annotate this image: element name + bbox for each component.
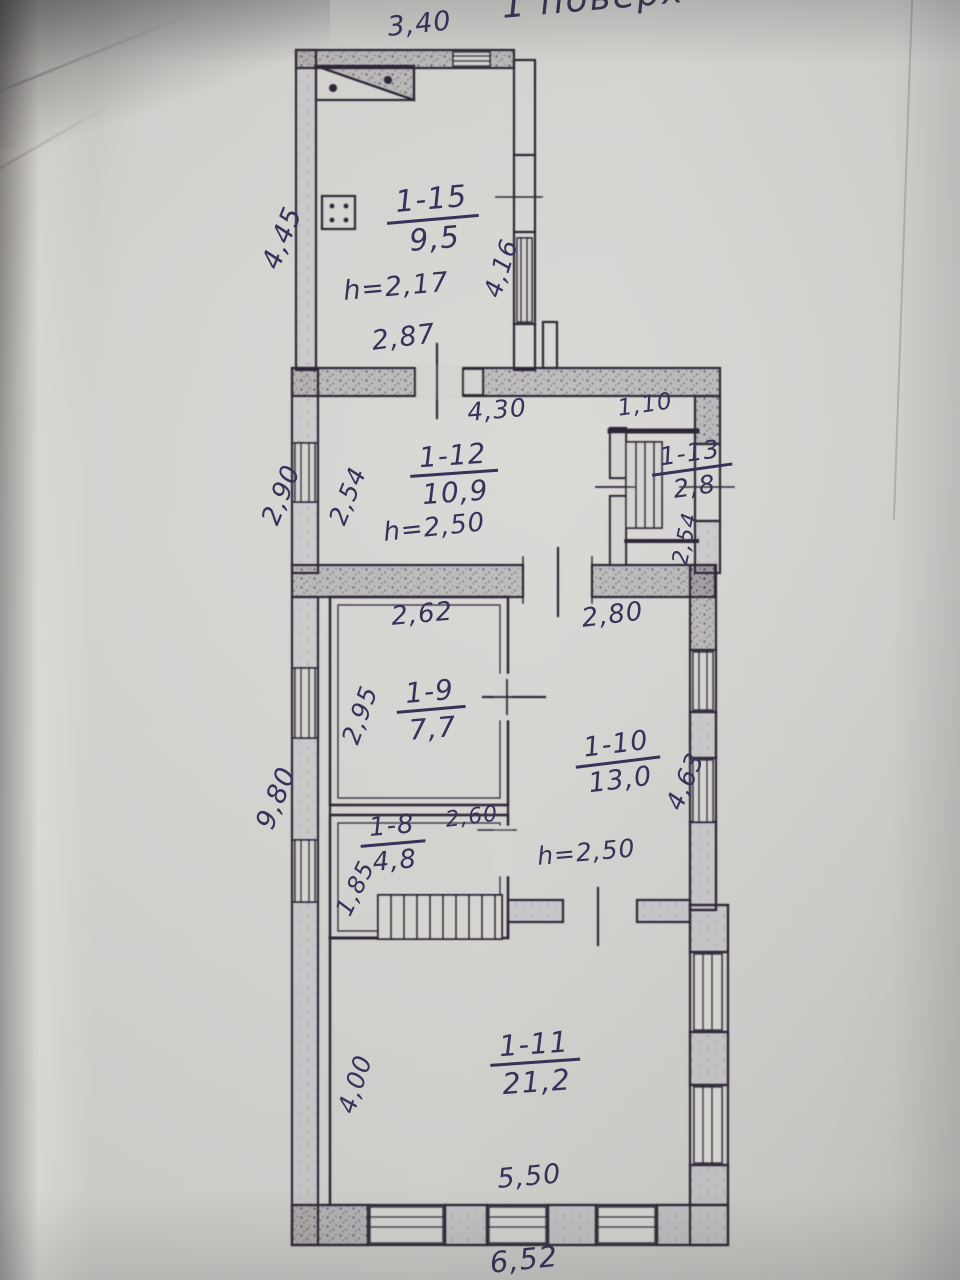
room-label-1-12: 1-12 10,9 — [408, 438, 500, 511]
floor-plan-drawing — [0, 0, 960, 1280]
room-label-1-15: 1-15 9,5 — [384, 180, 482, 259]
stairs-1-8 — [378, 895, 502, 939]
room-label-1-9: 1-9 7,7 — [394, 674, 468, 747]
room-label-1-13: 1-13 2,8 — [648, 435, 736, 506]
dim-top-1-9: 2,62 — [390, 597, 454, 632]
room-label-1-10: 1-10 13,0 — [572, 726, 665, 801]
room-label-1-11: 1-11 21,2 — [488, 1026, 582, 1101]
room-id: 1-11 — [488, 1026, 580, 1068]
walls-middle — [292, 565, 715, 597]
dim-bottom-outer: 6,52 — [488, 1239, 560, 1280]
room-area: 10,9 — [410, 472, 500, 510]
room-id: 1-9 — [394, 674, 465, 714]
scanned-floor-plan-page: 1 поверх 1-15 9,5 h=2,17 1-12 10,9 h=2,5… — [0, 0, 960, 1280]
room-area: 21,2 — [490, 1061, 582, 1101]
room-id: 1-12 — [408, 438, 498, 478]
room-area: 7,7 — [397, 708, 468, 746]
corner-flue-icon — [316, 66, 414, 100]
dim-bottom-1-11: 5,50 — [496, 1158, 563, 1194]
room-id: 1-8 — [358, 810, 426, 848]
dim-top-1-12: 4,30 — [466, 393, 528, 427]
stove-icon — [322, 196, 355, 229]
